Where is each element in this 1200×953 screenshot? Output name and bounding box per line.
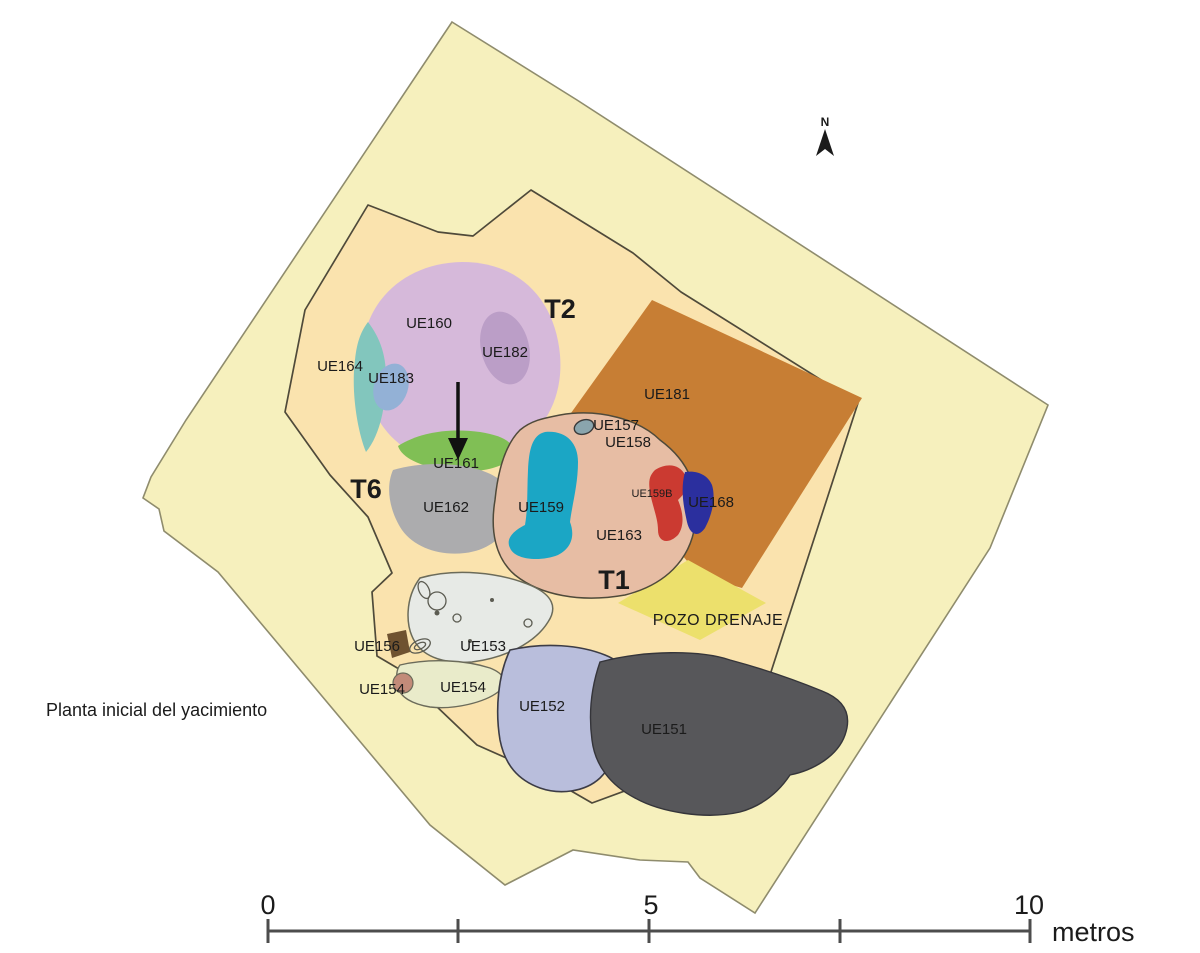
label-ue160: UE160 (406, 315, 452, 332)
stone (490, 598, 494, 602)
stone (435, 611, 440, 616)
figure-caption: Planta inicial del yacimiento (46, 700, 267, 720)
label-ue168: UE168 (688, 494, 734, 511)
label-t6: T6 (350, 474, 382, 504)
north-arrow-icon: N (816, 115, 834, 156)
label-ue154: UE154 (440, 679, 486, 696)
label-ue161: UE161 (433, 455, 479, 472)
scale-label-0: 0 (260, 890, 275, 920)
label-ue162: UE162 (423, 499, 469, 516)
label-ue152: UE152 (519, 698, 565, 715)
label-t2: T2 (544, 294, 576, 324)
label-ue154-small: UE154 (359, 681, 405, 698)
label-ue181: UE181 (644, 386, 690, 403)
label-ue158: UE158 (605, 434, 651, 451)
label-ue159: UE159 (518, 499, 564, 516)
label-ue159b: UE159B (632, 488, 673, 500)
label-ue157: UE157 (593, 417, 639, 434)
label-ue153: UE153 (460, 638, 506, 655)
label-t1: T1 (598, 565, 630, 595)
site-plan-figure: N T2 T6 T1 UE160 UE182 UE164 UE183 UE161… (0, 0, 1200, 953)
label-ue164: UE164 (317, 358, 363, 375)
scale-label-10: 10 (1014, 890, 1044, 920)
label-ue183: UE183 (368, 370, 414, 387)
label-ue163: UE163 (596, 527, 642, 544)
north-label: N (821, 115, 830, 129)
label-ue151: UE151 (641, 721, 687, 738)
label-ue182: UE182 (482, 344, 528, 361)
scale-label-5: 5 (643, 890, 658, 920)
label-pozo-drenaje: POZO DRENAJE (653, 612, 783, 629)
label-ue156: UE156 (354, 638, 400, 655)
scale-bar: 0 5 10 metros (260, 890, 1134, 947)
scale-unit-label: metros (1052, 917, 1135, 947)
